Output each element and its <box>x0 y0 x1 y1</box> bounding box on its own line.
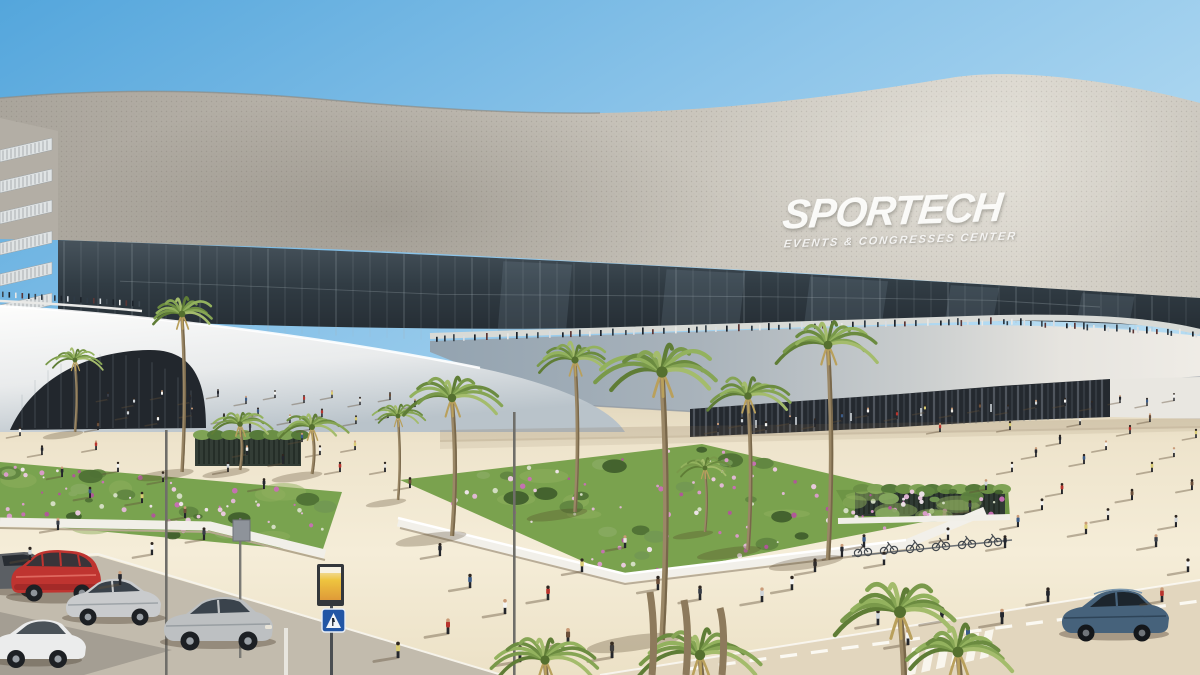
terrace-person <box>113 299 115 305</box>
podium-end-face <box>1110 377 1200 419</box>
shrub <box>771 511 792 523</box>
terrace-person <box>41 294 43 300</box>
flower <box>4 472 9 477</box>
flower <box>520 484 525 489</box>
terrace-person <box>852 322 854 328</box>
flower <box>722 451 725 454</box>
flower <box>205 508 209 512</box>
flower <box>871 510 874 513</box>
pergola-left <box>193 430 309 466</box>
terrace-person <box>1167 329 1169 335</box>
flower <box>764 545 768 549</box>
terrace-person <box>1030 321 1032 326</box>
terrace-person <box>1083 322 1085 329</box>
flower <box>528 477 532 481</box>
terrace-person <box>1137 327 1139 333</box>
shrub <box>79 470 103 483</box>
terrace-person <box>738 324 740 331</box>
terrace-person <box>106 299 108 305</box>
terrace-person <box>549 331 551 338</box>
terrace-person <box>562 332 564 337</box>
terrace-person <box>633 329 635 335</box>
terrace-person <box>801 322 803 329</box>
flower <box>43 476 45 478</box>
shrub <box>941 489 949 494</box>
shrub <box>116 490 135 501</box>
flower <box>274 487 279 492</box>
flower <box>41 492 43 494</box>
terrace-person <box>453 334 455 341</box>
flower <box>122 507 127 512</box>
flower <box>113 493 117 497</box>
flower <box>725 458 729 462</box>
terrace-person <box>28 294 30 300</box>
flower <box>232 488 238 494</box>
flower <box>72 474 75 477</box>
bollard <box>284 628 288 675</box>
terrace-person <box>9 292 11 298</box>
terrace-person <box>100 299 102 305</box>
glass-reflection <box>661 269 745 329</box>
terrace-person <box>885 321 887 327</box>
terrace-person <box>67 296 69 302</box>
flower <box>679 493 683 497</box>
terrace-person <box>1003 319 1005 324</box>
flower <box>782 492 785 495</box>
flower <box>6 507 10 511</box>
terrace-person <box>894 320 896 327</box>
shrub <box>696 447 707 453</box>
terrace-person <box>74 297 76 303</box>
terrace-person <box>526 334 528 339</box>
flower <box>993 501 995 503</box>
flower <box>65 488 67 490</box>
terrace-person <box>516 332 518 339</box>
shrub <box>995 490 1004 495</box>
terrace-person <box>715 327 717 332</box>
terrace-person <box>474 334 476 340</box>
terrace-person <box>768 323 770 330</box>
terrace-person <box>705 325 707 332</box>
flower <box>843 508 848 513</box>
shrub <box>634 551 649 559</box>
terrace-person <box>22 293 24 299</box>
terrace-person <box>444 336 446 342</box>
flower <box>219 506 221 508</box>
flower <box>294 504 296 506</box>
flower <box>472 494 477 499</box>
flower <box>568 477 571 480</box>
terrace-person <box>1020 318 1022 325</box>
terrace-person <box>600 330 602 336</box>
terrace-person <box>778 325 780 330</box>
person-silhouette <box>850 413 852 421</box>
planter-wall-corner <box>838 517 1010 521</box>
shrub <box>314 501 337 513</box>
flower <box>869 494 871 496</box>
flower <box>297 508 302 513</box>
flower <box>656 485 659 488</box>
terrace-person <box>940 321 942 326</box>
flower <box>777 541 779 543</box>
flower <box>172 487 177 492</box>
terrace-person <box>675 326 677 333</box>
flower <box>851 511 855 515</box>
flower <box>56 469 59 472</box>
flower <box>597 562 602 567</box>
terrace-person <box>1011 319 1013 325</box>
flower <box>711 477 715 481</box>
terrace-person <box>537 332 539 338</box>
flower <box>309 523 313 527</box>
flower <box>720 483 724 487</box>
flower <box>45 512 50 517</box>
terrace-person <box>2 292 4 298</box>
person-silhouette <box>990 404 992 412</box>
flower <box>904 494 909 499</box>
flower <box>601 550 605 554</box>
flower <box>735 534 739 538</box>
flower <box>631 562 636 567</box>
terrace-person <box>751 326 753 331</box>
light-pole-left <box>165 430 168 675</box>
flower <box>271 525 275 529</box>
flower <box>658 486 663 491</box>
flower <box>493 488 498 493</box>
light-pole-center <box>513 412 516 675</box>
flower <box>888 506 892 510</box>
terrace-person <box>1116 325 1118 332</box>
flower <box>226 505 228 507</box>
flower <box>23 473 27 477</box>
flower <box>555 470 559 474</box>
flower <box>773 467 777 471</box>
terrace-person <box>436 337 438 342</box>
terrace-person <box>915 320 917 326</box>
terrace-person <box>463 336 465 341</box>
flower <box>697 507 701 511</box>
flower <box>197 515 201 519</box>
flower <box>861 515 863 517</box>
flower <box>150 505 153 508</box>
terrace-person <box>967 320 969 325</box>
flower <box>733 486 736 489</box>
flower <box>75 510 80 515</box>
flower <box>78 470 81 473</box>
pedestrian-crossing-sign <box>322 609 345 632</box>
terrace-person <box>948 319 950 325</box>
terrace-person <box>789 323 791 329</box>
terrace-person <box>978 319 980 325</box>
flower <box>979 497 983 501</box>
shrub <box>795 532 809 540</box>
terrace-person <box>904 321 906 326</box>
flower <box>718 531 721 534</box>
flower <box>14 466 17 469</box>
shrub <box>2 469 16 477</box>
ad-display <box>317 564 344 606</box>
terrace-person <box>612 329 614 336</box>
terrace-person <box>61 296 63 302</box>
flower <box>619 506 621 508</box>
terrace-person <box>1156 329 1158 334</box>
shrub <box>602 459 627 473</box>
terrace-person <box>688 328 690 333</box>
terrace-person <box>15 293 17 299</box>
flower <box>99 504 104 509</box>
flower <box>179 502 183 506</box>
flower <box>21 468 25 472</box>
shrub <box>477 472 490 479</box>
terrace-person <box>570 331 572 337</box>
shrub <box>676 482 695 492</box>
terrace-person <box>957 318 959 325</box>
shrub <box>879 493 899 504</box>
flower <box>580 493 583 496</box>
terrace-person <box>93 298 95 304</box>
flower <box>533 489 537 493</box>
terrace-person <box>579 330 581 337</box>
flower <box>257 503 260 506</box>
terrace-person <box>1129 327 1131 332</box>
terrace-person <box>1074 323 1076 329</box>
shrub <box>915 486 935 497</box>
architectural-rendering: SPORTECH EVENTS & CONGRESSES CENTER <box>0 0 1200 675</box>
shrub <box>929 497 939 503</box>
flower <box>692 481 695 484</box>
flower <box>301 512 303 514</box>
shrub <box>598 527 617 537</box>
terrace-person <box>119 300 121 306</box>
flower <box>793 480 797 484</box>
terrace-person <box>499 335 501 340</box>
flower <box>621 458 624 461</box>
shrub <box>644 531 666 543</box>
terrace-person <box>864 320 866 327</box>
flower <box>592 508 595 511</box>
flower <box>218 507 223 512</box>
flower <box>102 481 105 484</box>
flower <box>697 491 701 495</box>
flower <box>694 511 699 516</box>
flower <box>465 490 469 494</box>
flower <box>901 502 906 507</box>
terrace-person <box>642 328 644 335</box>
flower <box>508 476 513 481</box>
shrub <box>68 491 77 496</box>
terrace-person <box>80 297 82 303</box>
terrace-person <box>990 317 992 324</box>
terrace-person <box>35 294 37 300</box>
terrace-person <box>696 327 698 333</box>
flower <box>647 547 652 552</box>
flower <box>170 482 172 484</box>
terrace-person <box>1093 325 1095 330</box>
flower <box>58 493 61 496</box>
flower <box>129 497 131 499</box>
flower <box>910 490 915 495</box>
flower <box>791 513 796 518</box>
flower <box>811 484 816 489</box>
terrace-person <box>126 300 128 306</box>
terrace-person <box>652 329 654 334</box>
flower <box>21 512 25 516</box>
flower <box>22 503 25 506</box>
terrace-person <box>486 333 488 340</box>
flower <box>732 476 736 480</box>
terrace-person <box>139 301 141 307</box>
glass-reflection <box>497 261 572 335</box>
flower <box>815 494 819 498</box>
scene-illustration <box>0 0 1200 675</box>
flower <box>255 501 257 503</box>
flower <box>39 470 44 475</box>
terrace-person <box>663 328 665 334</box>
terrace-person <box>54 295 56 301</box>
flower <box>321 528 324 531</box>
shrub <box>504 491 529 505</box>
flower <box>268 521 270 523</box>
terrace-person <box>48 295 50 301</box>
shrub <box>754 458 774 469</box>
flower <box>527 466 531 470</box>
terrace-person <box>1041 321 1043 327</box>
terrace-person <box>1192 332 1194 337</box>
terrace-person <box>625 330 627 335</box>
flower <box>927 513 930 516</box>
flower <box>591 558 593 560</box>
person-silhouette <box>920 408 922 416</box>
flower <box>942 502 945 505</box>
terrace-person <box>877 322 879 327</box>
shrub <box>534 487 557 500</box>
flower <box>177 493 183 499</box>
terrace-person <box>1066 323 1068 328</box>
flower <box>919 491 925 497</box>
terrace-person <box>1104 325 1106 331</box>
sign-back-panel <box>233 520 250 541</box>
terrace-person <box>1179 329 1181 336</box>
terrace-person <box>507 333 509 339</box>
terrace-person <box>1146 327 1148 334</box>
terrace-person <box>132 301 134 307</box>
terrace-person <box>589 331 591 336</box>
flower <box>621 563 626 568</box>
flower <box>151 513 155 517</box>
flower <box>221 511 226 516</box>
terrace-person <box>726 326 728 332</box>
flower <box>584 483 587 486</box>
terrace-person <box>927 319 929 326</box>
flower <box>51 501 56 506</box>
flower <box>728 511 732 515</box>
terrace-person <box>759 324 761 330</box>
terrace-person <box>1053 320 1055 327</box>
flower <box>999 496 1004 501</box>
shrub <box>948 489 957 494</box>
person-silhouette <box>795 417 797 425</box>
flower <box>883 526 886 529</box>
terrace-person <box>87 298 89 304</box>
flower <box>231 499 236 504</box>
